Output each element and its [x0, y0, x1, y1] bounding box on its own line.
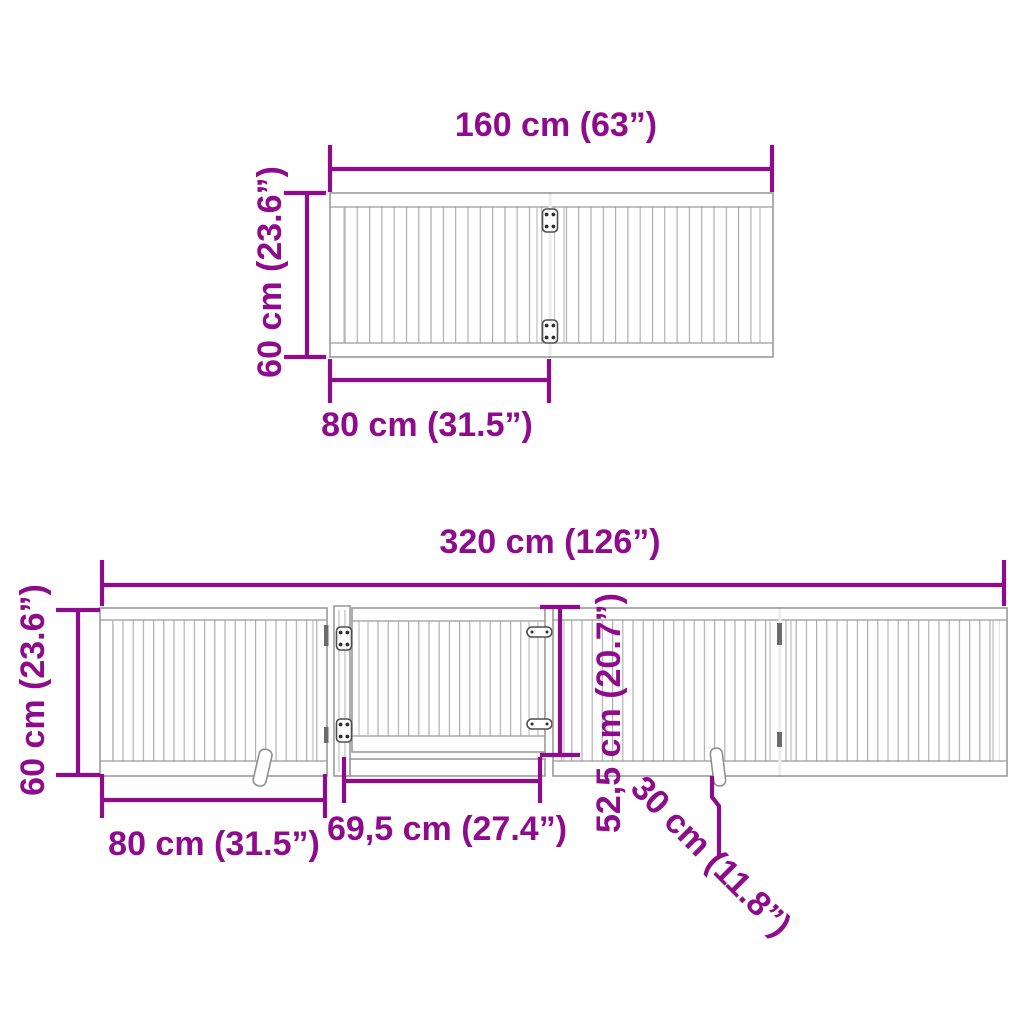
bottom-gate-panel-4-slats — [785, 620, 1000, 761]
bottom-gate-panel-1-slats — [105, 620, 320, 761]
top-gate-panel-1-slats — [334, 207, 548, 343]
top-gate-width-label: 160 cm (63”) — [455, 106, 657, 144]
bottom-total-width-dimension-line — [102, 560, 1004, 606]
bottom-gate-panel-width-label: 80 cm (31.5”) — [108, 825, 320, 863]
door-hinge — [337, 719, 352, 742]
hinge-knuckle — [324, 727, 329, 743]
top-gate-panel-width-label: 80 cm (31.5”) — [321, 406, 533, 444]
door-height-label: 52,5 cm (20.7”) — [590, 593, 628, 833]
hinge — [543, 209, 558, 232]
latch-pin — [527, 719, 552, 729]
door-hinge — [337, 627, 352, 650]
product-dimension-image: 160 cm (63”) 60 cm (23.6”) 80 cm (31.5”) — [0, 0, 1024, 1024]
bottom-panel-width-dimension-line — [102, 774, 325, 818]
latch-pin — [527, 627, 552, 637]
top-height-dimension-line — [284, 193, 326, 357]
bottom-gate-total-width-label: 320 cm (126”) — [439, 523, 660, 561]
under-door-bottom-bar — [350, 759, 545, 776]
hinge — [543, 320, 558, 343]
top-panel-width-dimension-line — [330, 359, 549, 403]
gate-dimension-diagram: 160 cm (63”) 60 cm (23.6”) 80 cm (31.5”) — [0, 0, 1024, 1024]
bottom-gate-height-label: 60 cm (23.6”) — [14, 584, 52, 796]
hinge-knuckle — [777, 732, 782, 747]
door-width-label: 69,5 cm (27.4”) — [327, 810, 567, 848]
hinge-knuckle — [777, 623, 782, 645]
bottom-height-dimension-line — [56, 610, 100, 775]
gate-door-slats — [369, 621, 529, 736]
top-gate-height-label: 60 cm (23.6”) — [251, 166, 289, 378]
top-width-dimension-line — [330, 145, 772, 192]
hinge-knuckle — [324, 625, 329, 646]
bottom-gate-drawing — [100, 606, 1007, 787]
top-gate-panel-2-slats — [554, 207, 759, 343]
top-gate-drawing — [330, 193, 773, 357]
